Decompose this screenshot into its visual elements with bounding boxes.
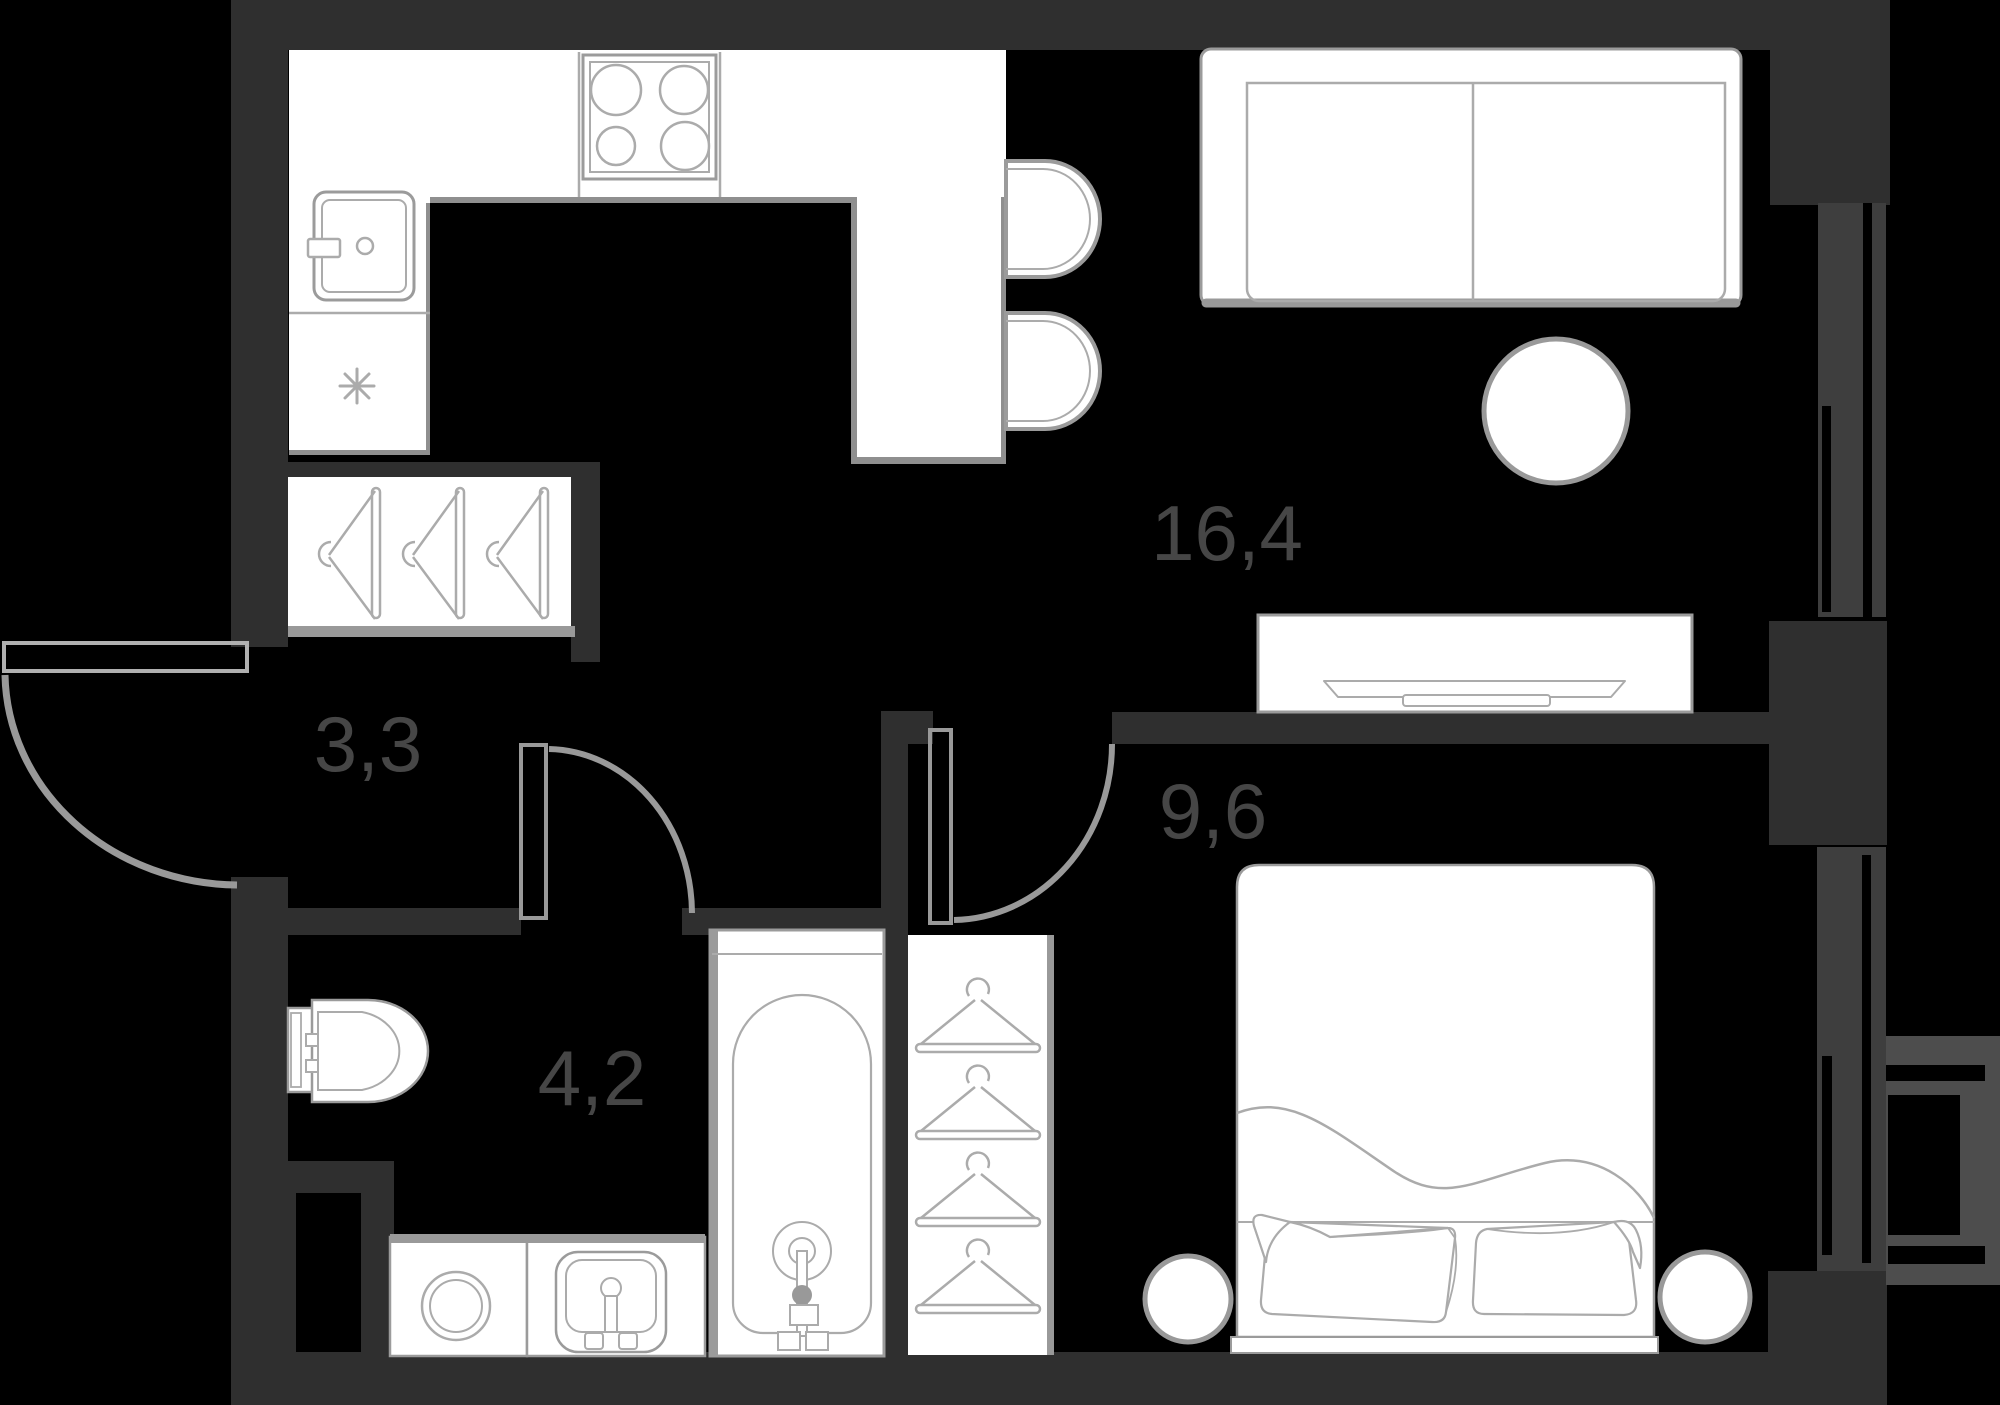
svg-text:16,4: 16,4 bbox=[1151, 489, 1303, 577]
svg-text:4,2: 4,2 bbox=[538, 1034, 646, 1122]
svg-text:9,6: 9,6 bbox=[1159, 767, 1267, 855]
svg-text:3,3: 3,3 bbox=[314, 700, 422, 788]
